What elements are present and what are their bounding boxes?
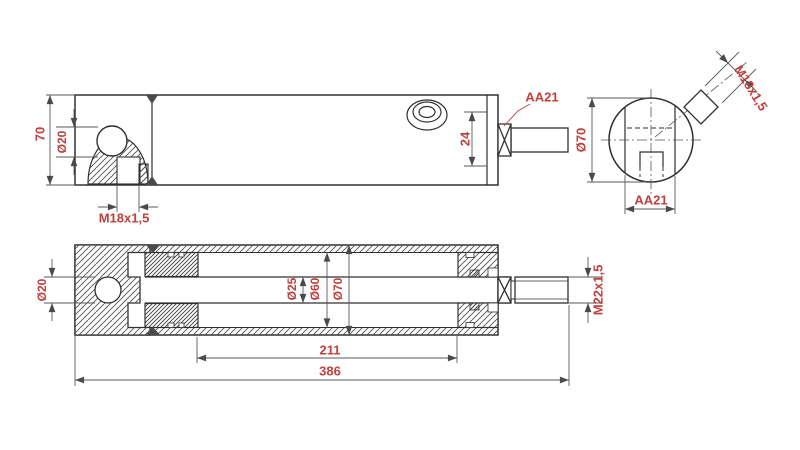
dim-label-across-flats: AA21 (634, 194, 667, 207)
dim-label-pin-bore: Ø20 (56, 131, 68, 154)
dim-label-stroke-length: 211 (320, 344, 341, 357)
dim-label-rod-dia: Ø25 (286, 278, 298, 301)
dim-label-rod-thread: M22x1,5 (592, 265, 605, 316)
dim-label-end-outer-dia: Ø70 (575, 128, 588, 153)
end-view (601, 62, 747, 194)
rod-end (498, 124, 568, 156)
port-boss-end (684, 90, 718, 124)
dim-label-bottom-thread: M18x1,5 (99, 212, 150, 225)
drawing-canvas: 70 Ø20 M18x1,5 24 AA21 Ø70 M18x1,5 AA21 … (0, 0, 800, 450)
port-boss (407, 100, 447, 130)
rod-end-section (498, 277, 568, 303)
pin-hole (97, 126, 127, 156)
dim-label-port-offset: 24 (459, 132, 472, 146)
dim-label-height: 70 (34, 127, 47, 141)
dim-label-sec-pin-bore: Ø20 (36, 279, 48, 302)
dim-label-sec-outer-dia: Ø70 (332, 278, 344, 301)
dim-label-overall-length: 386 (319, 365, 341, 378)
dim-label-rod-bearing: AA21 (525, 91, 558, 104)
side-view (75, 95, 568, 185)
dim-label-bore-dia: Ø60 (309, 278, 321, 301)
pin-hole-section (95, 277, 121, 303)
